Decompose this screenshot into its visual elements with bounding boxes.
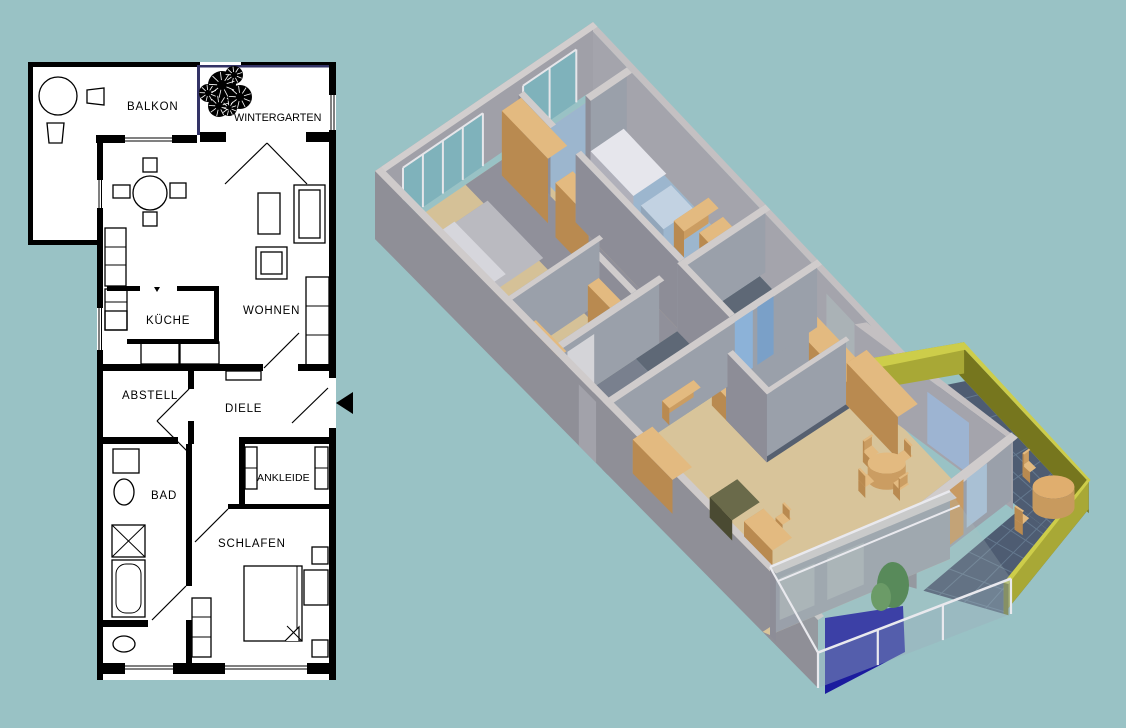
svg-text:ANKLEIDE: ANKLEIDE — [257, 472, 310, 484]
svg-text:DIELE: DIELE — [225, 403, 262, 415]
svg-text:BAD: BAD — [151, 490, 177, 502]
svg-text:SCHLAFEN: SCHLAFEN — [218, 538, 286, 550]
svg-text:BALKON: BALKON — [127, 101, 178, 113]
svg-text:WINTERGARTEN: WINTERGARTEN — [234, 112, 321, 124]
svg-text:WOHNEN: WOHNEN — [243, 305, 300, 317]
svg-text:ABSTELL: ABSTELL — [122, 390, 178, 402]
svg-text:KÜCHE: KÜCHE — [146, 315, 190, 327]
